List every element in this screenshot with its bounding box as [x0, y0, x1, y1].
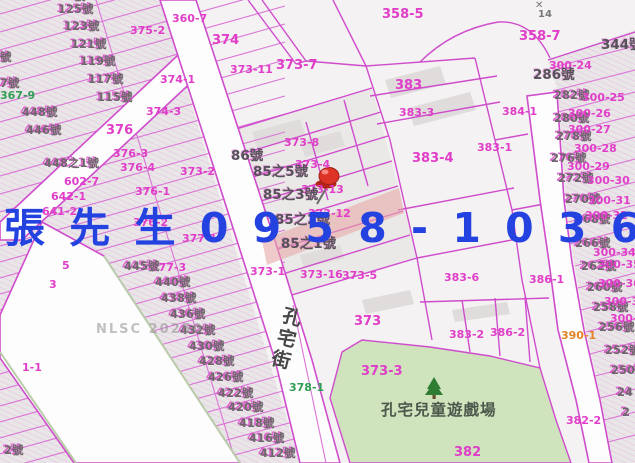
parcel-number-label: 383	[395, 79, 422, 92]
parcel-number-label: 300-27	[568, 124, 611, 135]
house-number-label: 446號	[26, 125, 62, 137]
house-number-label: 2	[622, 407, 630, 419]
house-number-label: 412號	[260, 448, 296, 460]
house-number-label: 445號	[124, 261, 160, 273]
house-number-label: 85之5號	[253, 166, 308, 180]
parcel-number-label: 373-7	[276, 59, 318, 72]
parcel-number-label: 300-36	[598, 278, 635, 289]
park-name-label: 孔宅兒童遊戲場	[381, 398, 497, 420]
parcel-number-label: 367-9	[0, 90, 35, 101]
house-number-label: 2號	[4, 445, 24, 457]
parcel-number-label: 300-37	[604, 296, 635, 307]
parcel-number-label: 373	[354, 315, 381, 328]
house-number-label: 250號	[611, 365, 635, 377]
house-number-label: 號	[0, 52, 12, 64]
house-number-label: 286號	[533, 69, 575, 83]
parcel-number-label: 300-38	[610, 313, 635, 324]
parcel-number-label: 300-28	[574, 143, 617, 154]
house-number-label: 418號	[239, 418, 275, 430]
parcel-number-label: 358-5	[382, 8, 424, 21]
parcel-number-label: 386-2	[490, 327, 525, 338]
house-number-label: 448號	[22, 107, 58, 119]
parcel-number-label: 374-3	[146, 106, 181, 117]
house-number-label: 438號	[161, 293, 197, 305]
house-number-label: 7號	[0, 78, 20, 90]
parcel-number-label: 373-11	[230, 64, 273, 75]
nlsc-watermark: NLSC 20250	[96, 322, 204, 337]
parcel-number-label: 300-25	[582, 92, 625, 103]
parcel-number-label: 378-1	[289, 382, 324, 393]
parcel-number-label: 3	[49, 279, 57, 290]
house-number-label: 252號	[605, 345, 635, 357]
house-number-label: 115號	[97, 92, 133, 104]
parcel-number-label: 300-26	[568, 108, 611, 119]
parcel-number-label: 602-7	[64, 176, 99, 187]
parcel-number-label: 374	[212, 34, 239, 47]
parcel-number-label: 360-7	[172, 13, 207, 24]
house-number-label: 448之1號	[44, 158, 99, 170]
parcel-number-label: 376-3	[113, 148, 148, 159]
house-number-label: 344號	[601, 39, 635, 53]
parcel-number-label: 383-3	[399, 107, 434, 118]
house-number-label: 430號	[189, 341, 225, 353]
parcel-number-label: 5	[62, 260, 70, 271]
parcel-number-label: 1-1	[22, 362, 42, 373]
parcel-number-label: 373-2	[180, 166, 215, 177]
parcel-number-label: 373-5	[342, 270, 377, 281]
parcel-number-label: 373-1	[250, 266, 285, 277]
house-number-label: 440號	[155, 277, 191, 289]
parcel-number-label: 373-8	[284, 137, 319, 148]
house-number-label: 426號	[208, 372, 244, 384]
parcel-number-label: 382-2	[566, 415, 601, 426]
parcel-number-label: 382	[454, 446, 481, 459]
parcel-number-label: 376-4	[120, 162, 155, 173]
parcel-number-label: 373-3	[361, 365, 403, 378]
house-number-label: 422號	[218, 388, 254, 400]
house-number-label: 117號	[88, 74, 124, 86]
road-number-label: 390-1	[561, 330, 596, 341]
survey-mark-label: 14	[538, 10, 552, 20]
house-number-label: 119號	[80, 56, 116, 68]
house-number-label: 416號	[249, 433, 285, 445]
parcel-number-label: 383-1	[477, 142, 512, 153]
parcel-number-label: 300-35	[598, 259, 635, 270]
house-number-label: 420號	[228, 402, 264, 414]
parcel-number-label: 384-1	[502, 106, 537, 117]
house-number-label: 121號	[71, 39, 107, 51]
parcel-number-label: 376	[106, 124, 133, 137]
parcel-number-label: 383-2	[449, 329, 484, 340]
house-number-label: 86號	[231, 150, 263, 164]
parcel-number-label: 374-1	[160, 74, 195, 85]
house-number-label: 436號	[170, 309, 206, 321]
contact-watermark: 張 先 生 0 9 5 8 - 1 0 3 6 8 0	[4, 194, 635, 254]
house-number-label: 123號	[64, 21, 100, 33]
parcel-number-label: 358-7	[519, 30, 561, 43]
parcel-number-label: 386-1	[529, 274, 564, 285]
parcel-number-label: 383-6	[444, 272, 479, 283]
parcel-number-label: 300-30	[587, 175, 630, 186]
parcel-number-label: 373-16	[300, 269, 343, 280]
house-number-label: 24	[617, 387, 633, 399]
parcel-number-label: 383-4	[412, 152, 454, 165]
house-number-label: 428號	[199, 356, 235, 368]
cadastral-map-canvas[interactable]: 127號125號123號121號119號117號115號號7號448號446號4…	[0, 0, 635, 463]
parcel-number-label: 375-2	[130, 25, 165, 36]
house-number-label: 125號	[58, 4, 94, 16]
